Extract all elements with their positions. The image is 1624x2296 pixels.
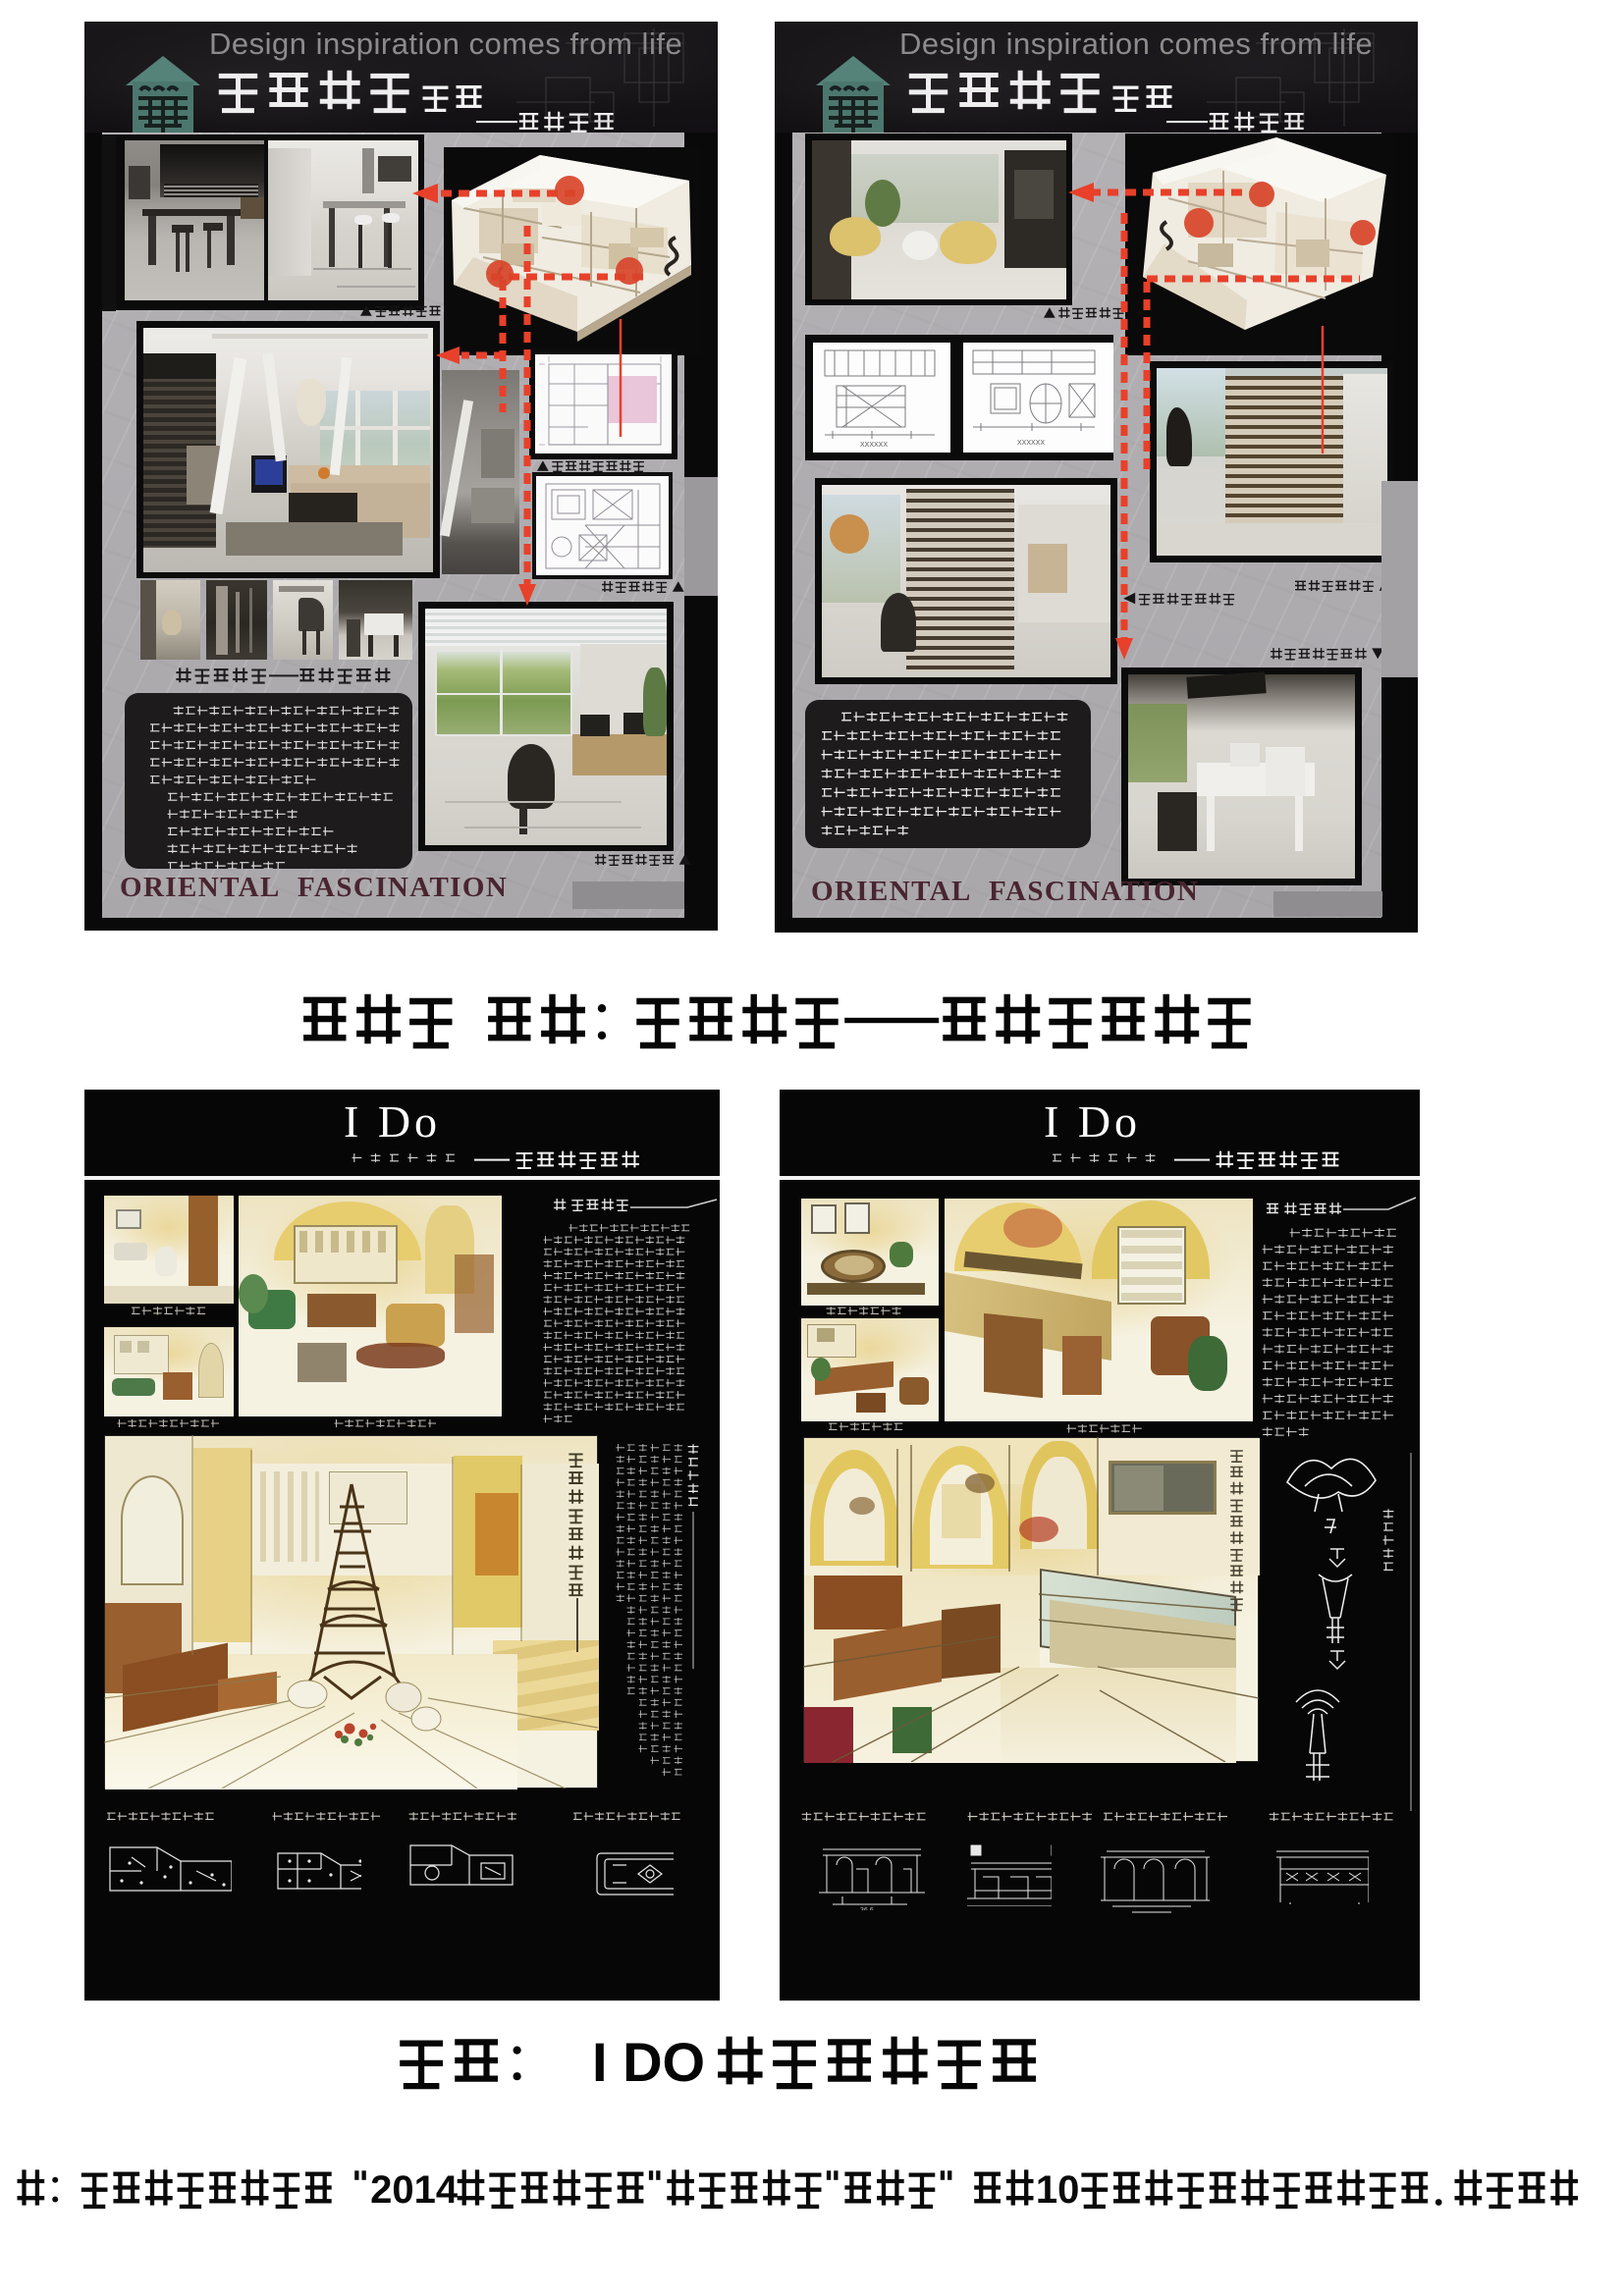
svg-text:I DO: I DO: [592, 2031, 705, 2093]
svg-text:10: 10: [1036, 2168, 1080, 2212]
svg-text:36.6: 36.6: [860, 1907, 874, 1910]
svg-text:2014: 2014: [370, 2168, 459, 2212]
